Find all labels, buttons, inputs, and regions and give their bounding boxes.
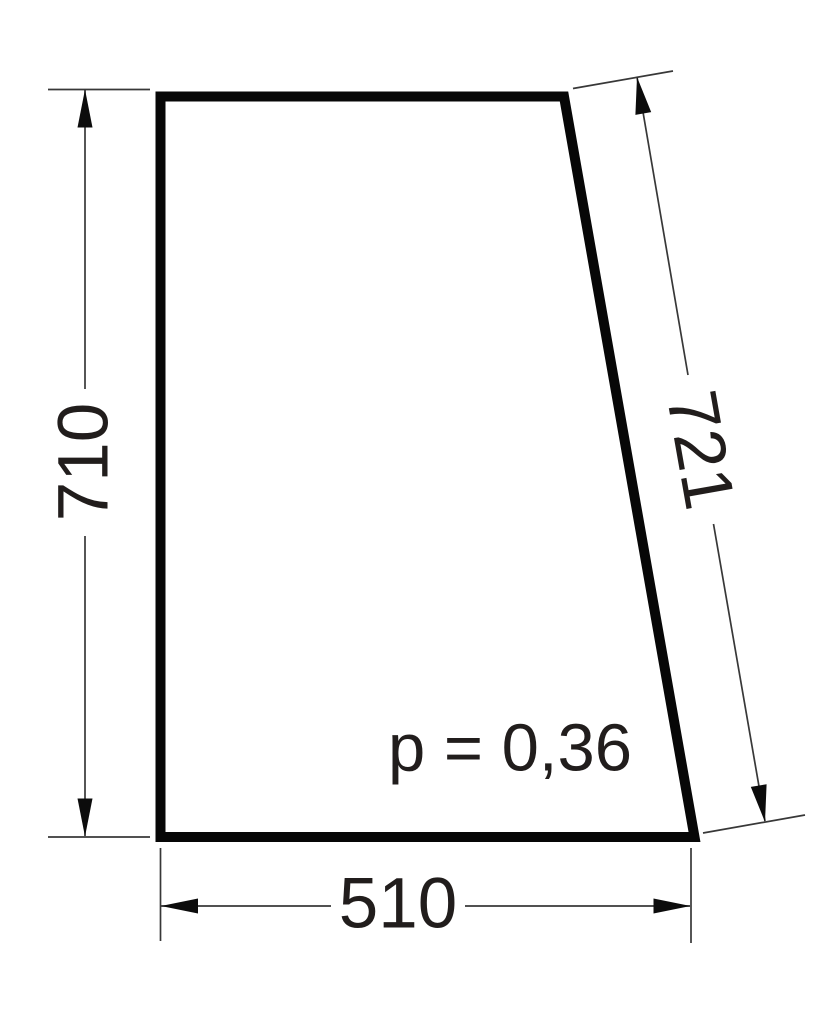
dimension-line-slant-upper bbox=[637, 77, 688, 375]
dimension-line-slant-lower bbox=[714, 524, 766, 821]
slope-ratio-label: p = 0,36 bbox=[388, 711, 632, 786]
drawing-canvas: 710 721 510 p = 0,36 bbox=[0, 0, 825, 1028]
dimension-slant-value: 721 bbox=[651, 385, 749, 515]
arrow-right-icon bbox=[654, 899, 691, 914]
extension-line-top-right bbox=[573, 71, 673, 89]
arrow-down-slant-icon bbox=[751, 784, 767, 822]
dimension-bottom-value: 510 bbox=[339, 865, 457, 944]
trapezoid-technical-drawing: 710 721 510 p = 0,36 bbox=[0, 0, 825, 1028]
arrow-left-icon bbox=[161, 899, 198, 914]
arrow-up-slant-icon bbox=[635, 77, 651, 115]
dimension-left-value: 710 bbox=[45, 403, 124, 521]
arrow-up-icon bbox=[78, 90, 93, 128]
dimension-left-height: 710 bbox=[45, 90, 151, 838]
dimension-bottom-width: 510 bbox=[161, 848, 692, 944]
extension-line-bottom-right bbox=[703, 815, 805, 833]
arrow-down-icon bbox=[78, 799, 93, 837]
